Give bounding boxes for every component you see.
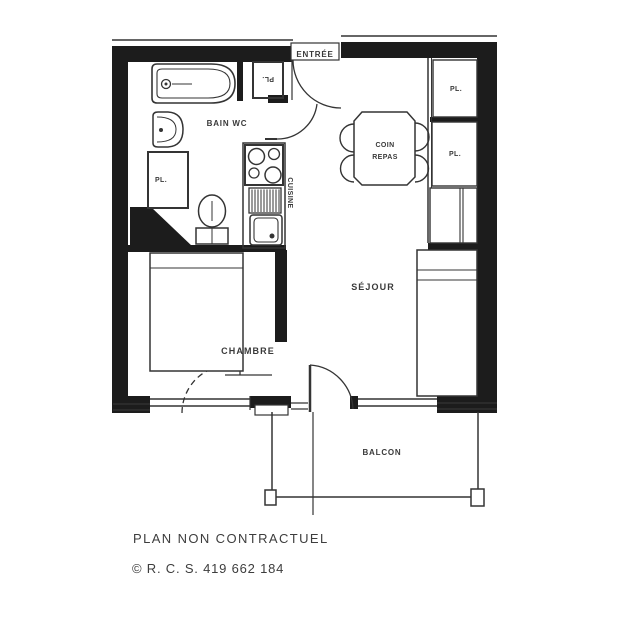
bathtub-outer (152, 64, 235, 103)
hall-door-arc (277, 104, 317, 139)
label-entree: ENTRÉE (296, 50, 333, 59)
sink-basin (254, 218, 278, 242)
label-chambre: CHAMBRE (221, 346, 275, 356)
wall-diagonal (130, 207, 193, 247)
dining-chair-right-2 (415, 155, 429, 182)
plan-registration: © R. C. S. 419 662 184 (132, 561, 284, 576)
wall-right (477, 42, 497, 396)
wall-kitchen-partition (275, 250, 287, 342)
label-coin-repas-2: REPAS (372, 154, 398, 161)
label-closet-right-mid: PL. (449, 151, 461, 158)
dining-chair-left-2 (341, 155, 355, 182)
wall-closet-divider-1 (430, 117, 477, 122)
label-coin-repas-1: COIN (375, 142, 394, 149)
burner-4 (265, 167, 281, 183)
label-sejour: SÉJOUR (351, 282, 395, 292)
bathtub-faucet-dot (165, 83, 168, 86)
sejour-sofa (417, 250, 477, 396)
balcony-door-arc (310, 365, 353, 409)
floor-plan-page: ENTRÉE PL. BAIN WC PL. CUISINE COIN REPA… (0, 0, 640, 640)
dining-chair-right-1 (415, 123, 429, 151)
dining-chair-left-1 (340, 124, 354, 152)
burner-3 (249, 168, 259, 178)
balcony-post-left (265, 490, 276, 505)
balcony (265, 412, 484, 515)
closet-right-low-divider (460, 188, 463, 243)
sink-drain (270, 234, 275, 239)
wall-left (112, 46, 128, 412)
washbasin-drain (159, 128, 163, 132)
fridge-hatch (252, 190, 279, 213)
label-balcon: BALCON (362, 448, 401, 457)
label-closet-bath: PL. (155, 177, 167, 184)
wall-tub-stub (237, 57, 243, 101)
wall-closet-divider-2 (428, 243, 477, 250)
bathtub-inner (157, 69, 230, 98)
label-cuisine: CUISINE (286, 177, 293, 208)
entry-door-arc (293, 60, 341, 108)
wall-top-left (112, 46, 293, 62)
burner-2 (269, 149, 280, 160)
closet-right-low-box (430, 188, 477, 243)
label-closet-right-top: PL. (450, 86, 462, 93)
label-closet-hall: PL. (262, 75, 274, 82)
wall-top-right (341, 42, 497, 58)
wall-bottom-right-corner (437, 396, 497, 413)
plan-disclaimer: PLAN NON CONTRACTUEL (133, 531, 329, 546)
label-bain-wc: BAIN WC (207, 119, 248, 128)
balcony-post-right (471, 489, 484, 506)
burner-1 (249, 149, 265, 165)
kitchen-fixtures (243, 143, 285, 248)
